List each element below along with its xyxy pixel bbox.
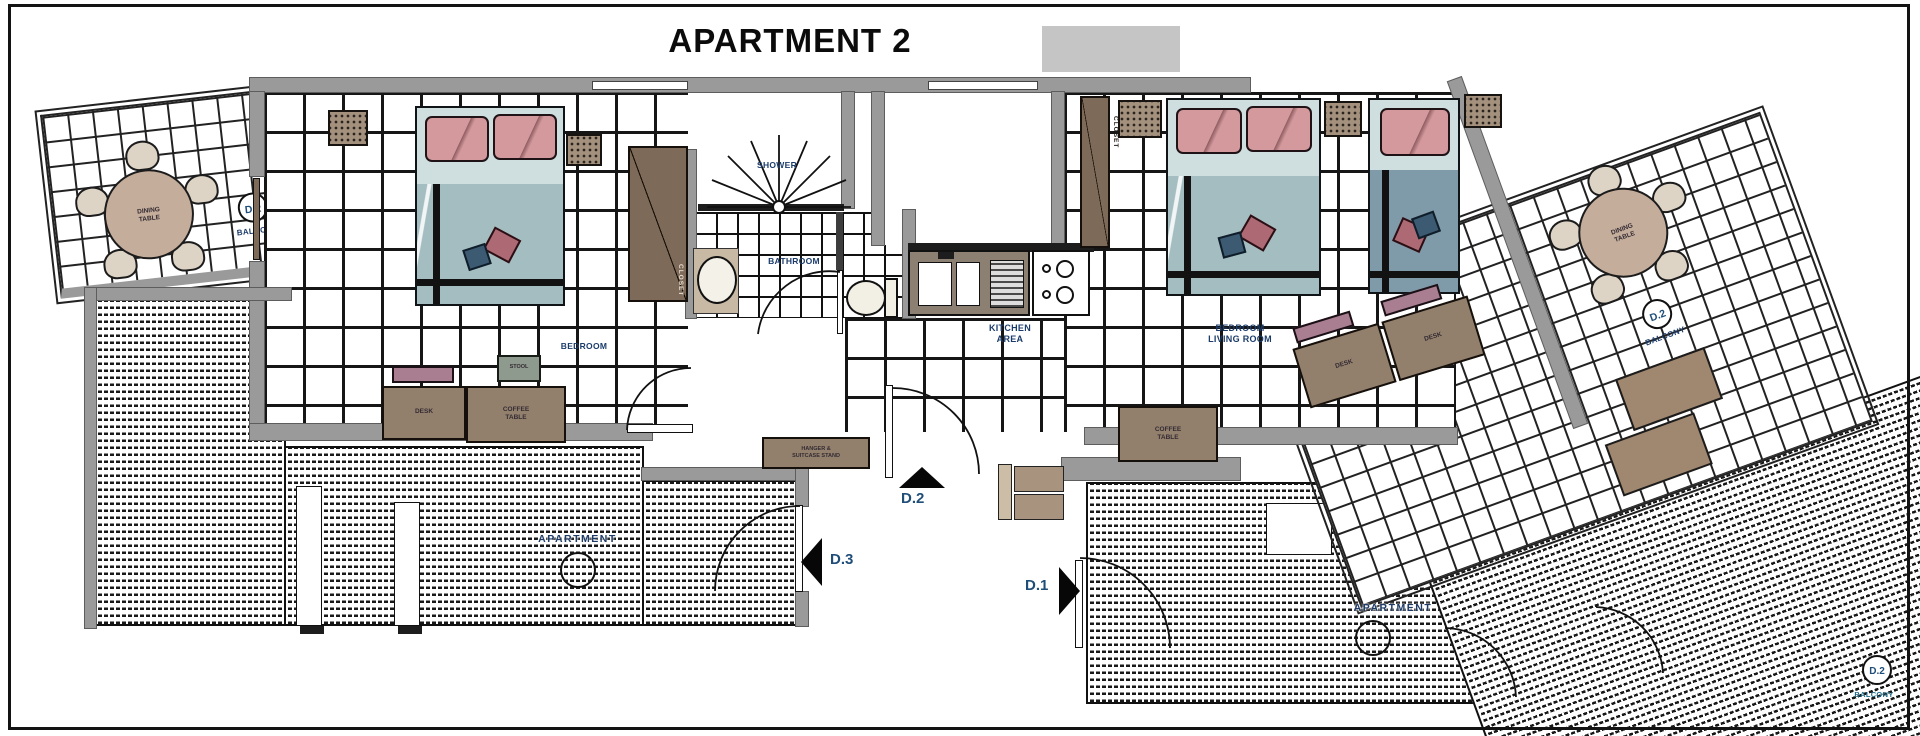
floor-plan-canvas: DINING TABLE D.2 BALCONY DINING TABLE D.…	[0, 0, 1920, 736]
stair-shaft	[394, 502, 420, 626]
balcony-right-door-tag: D.2	[1638, 295, 1676, 333]
desk-label: DESK	[384, 408, 464, 416]
door-label-d2: D.2	[901, 490, 924, 507]
door-leaf	[837, 270, 843, 334]
toilet-tank	[884, 278, 898, 318]
coffee-table-label: TABLE	[468, 414, 564, 422]
coffee-table: COFFEE TABLE	[466, 386, 566, 443]
door-label-d3: D.3	[830, 551, 853, 568]
burner	[1056, 286, 1074, 304]
lounge-sofa	[1615, 347, 1723, 431]
balcony-door-leaf	[253, 178, 260, 260]
door-jamb	[398, 626, 422, 634]
utility-cabinet	[998, 464, 1012, 520]
door-jamb	[300, 626, 324, 634]
room-label-kitchen: KITCHENAREA	[960, 323, 1060, 345]
stair-shaft	[296, 486, 322, 626]
door-leaf	[627, 424, 693, 433]
double-bed	[1166, 98, 1321, 296]
window	[592, 81, 688, 90]
kitchen-counter	[908, 250, 1030, 316]
page-title: APARTMENT 2	[590, 22, 990, 60]
wall	[250, 78, 1250, 92]
bench	[392, 366, 454, 383]
burner	[1056, 260, 1074, 278]
closet-label: CLOSET	[677, 264, 684, 296]
neighbor-tag-right	[1355, 620, 1391, 656]
neighbor-label-left: APARTMENT	[500, 533, 655, 545]
neighbor-label-right: APARTMENT	[1318, 602, 1468, 614]
room-label-bathroom: BATHROOM	[744, 256, 844, 267]
double-bed	[415, 106, 565, 306]
wall	[796, 592, 808, 626]
faucet	[938, 252, 954, 259]
desk-label: DESK	[1391, 321, 1475, 353]
kitchen-sink-basin	[956, 262, 980, 306]
wall	[842, 92, 854, 208]
wall	[250, 92, 264, 176]
lounge-sofa	[1605, 412, 1713, 496]
stair-shaft	[1266, 503, 1332, 555]
chair	[124, 139, 161, 173]
desk: DESK	[382, 386, 466, 440]
closet: CLOSET	[628, 146, 688, 302]
single-bed	[1368, 98, 1460, 294]
wall	[1052, 92, 1064, 245]
wall	[872, 92, 884, 245]
room-label-bedroom-left: BEDROOM	[534, 341, 634, 352]
legend-swatch	[1042, 26, 1180, 72]
toilet-bowl	[846, 280, 886, 316]
door-marker-d3	[801, 538, 822, 586]
door-marker-d1	[1059, 567, 1080, 615]
utility-box	[1014, 466, 1064, 492]
drainer	[990, 260, 1024, 308]
nightstand	[1324, 101, 1362, 137]
wall	[642, 468, 798, 480]
utility-box	[1014, 494, 1064, 520]
stool-label: STOOL	[499, 364, 539, 372]
kitchen-sink-basin	[918, 262, 952, 306]
room-label-shower: SHOWER	[727, 160, 827, 171]
nightstand	[1464, 94, 1502, 128]
stove	[1032, 250, 1090, 316]
nightstand	[566, 134, 602, 166]
hanger-label: SUITCASE STAND	[764, 453, 868, 460]
coffee-table-label: TABLE	[1120, 434, 1216, 442]
coffee-table: COFFEE TABLE	[1118, 406, 1218, 462]
shower-floor	[698, 92, 846, 208]
hanger-suitcase-stand: HANGER & SUITCASE STAND	[762, 437, 870, 469]
nightstand	[1118, 100, 1162, 138]
bathroom-sink	[697, 256, 737, 304]
wall	[85, 288, 291, 300]
burner	[1042, 290, 1051, 299]
desk-label: DESK	[1302, 348, 1386, 380]
balcony-corner-label: BALCONY	[1824, 690, 1920, 699]
wall	[85, 288, 96, 628]
door-label-d1: D.1	[1025, 577, 1048, 594]
window	[928, 81, 1038, 90]
coffee-table-label: COFFEE	[1120, 426, 1216, 434]
neighbor-apartment-left-hatch	[642, 480, 800, 626]
room-label-living: BEDROOMLIVING ROOM	[1180, 323, 1300, 345]
burner	[1042, 264, 1051, 273]
neighbor-tag-left	[560, 552, 596, 588]
balcony-corner-door-tag: D.2	[1862, 655, 1892, 685]
coffee-table-label: COFFEE	[468, 406, 564, 414]
nightstand	[328, 110, 368, 146]
shower-step	[698, 204, 844, 211]
door-marker-d2	[899, 467, 945, 488]
door-leaf	[885, 385, 893, 478]
stool: STOOL	[497, 355, 541, 382]
closet	[1080, 96, 1110, 248]
